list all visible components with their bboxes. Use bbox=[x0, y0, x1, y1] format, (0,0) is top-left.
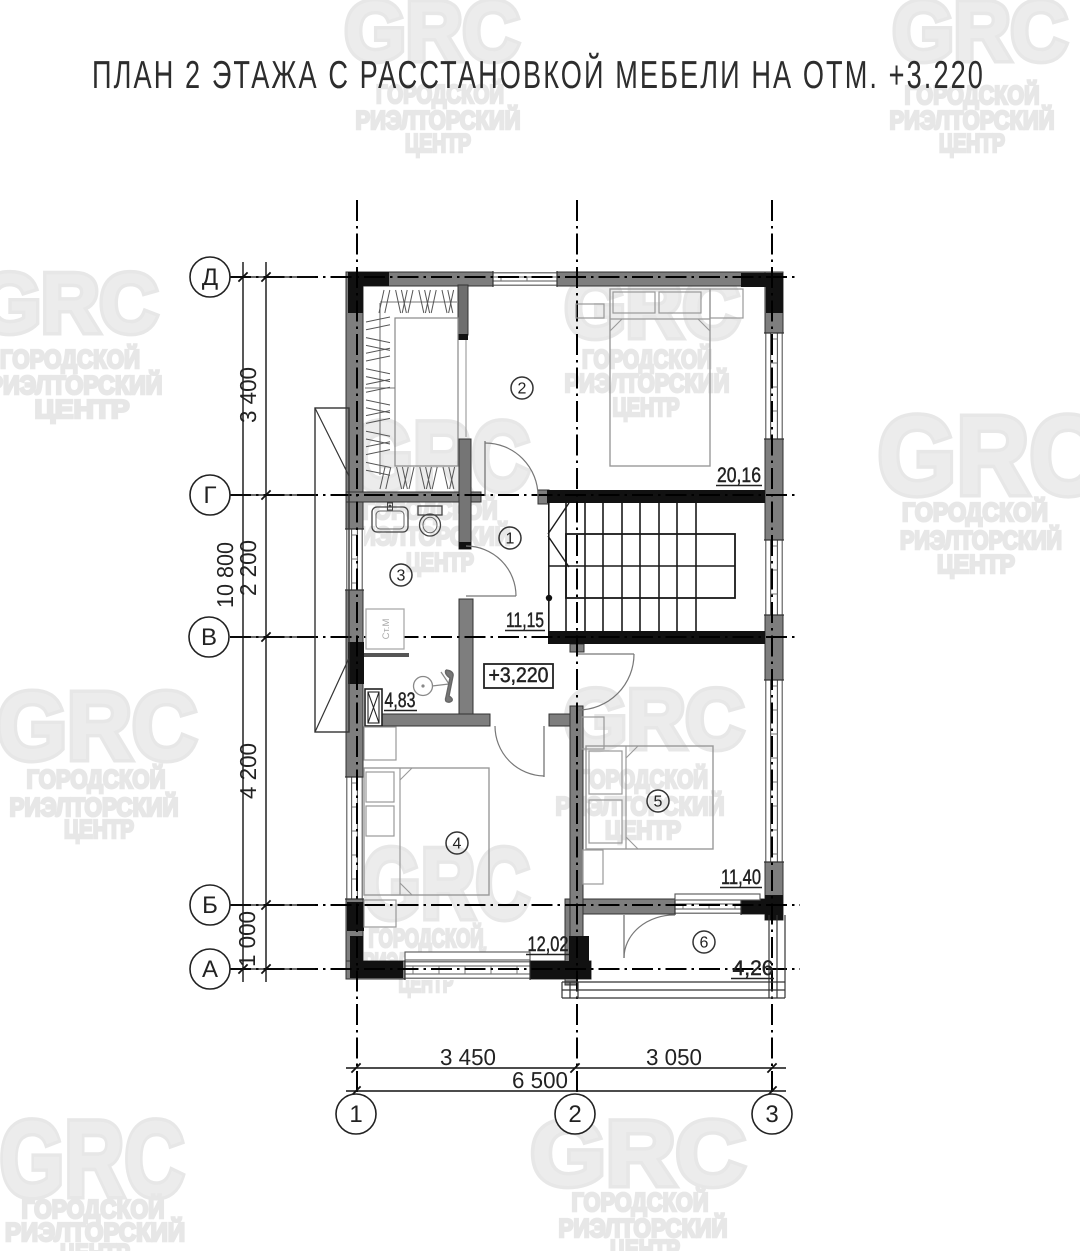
svg-text:1 000: 1 000 bbox=[234, 911, 260, 967]
svg-text:ЦЕНТР: ЦЕНТР bbox=[605, 815, 681, 845]
svg-text:3 450: 3 450 bbox=[440, 1044, 496, 1070]
svg-text:ЦЕНТР: ЦЕНТР bbox=[939, 128, 1005, 158]
svg-text:ПЛАН 2 ЭТАЖА С РАССТАНОВКОЙ МЕ: ПЛАН 2 ЭТАЖА С РАССТАНОВКОЙ МЕБЕЛИ НА ОТ… bbox=[92, 52, 985, 97]
svg-text:6: 6 bbox=[700, 935, 709, 952]
svg-text:4,83: 4,83 bbox=[385, 689, 416, 712]
svg-text:ЦЕНТР: ЦЕНТР bbox=[60, 1238, 130, 1251]
svg-text:ЦЕНТР: ЦЕНТР bbox=[35, 394, 130, 424]
svg-text:Ст.М: Ст.М bbox=[381, 619, 392, 640]
svg-text:+3,220: +3,220 bbox=[489, 664, 549, 687]
svg-text:GRC: GRC bbox=[564, 672, 744, 766]
svg-text:ЦЕНТР: ЦЕНТР bbox=[405, 128, 471, 158]
svg-text:4 200: 4 200 bbox=[235, 743, 261, 799]
svg-text:ГОРОДСКОЙ: ГОРОДСКОЙ bbox=[27, 764, 166, 794]
svg-text:Г: Г bbox=[204, 482, 217, 509]
svg-text:В: В bbox=[201, 624, 217, 651]
svg-text:Б: Б bbox=[202, 892, 218, 919]
svg-text:11,15: 11,15 bbox=[506, 609, 544, 632]
svg-text:12,02: 12,02 bbox=[528, 933, 569, 956]
svg-text:ЦЕНТР: ЦЕНТР bbox=[610, 1234, 680, 1251]
svg-text:1: 1 bbox=[506, 531, 515, 548]
svg-text:11,40: 11,40 bbox=[721, 866, 761, 889]
svg-text:3: 3 bbox=[397, 568, 406, 585]
svg-text:ГОРОДСКОЙ: ГОРОДСКОЙ bbox=[578, 764, 708, 794]
svg-text:1: 1 bbox=[349, 1101, 362, 1128]
svg-text:ЦЕНТР: ЦЕНТР bbox=[406, 547, 474, 577]
svg-text:ЦЕНТР: ЦЕНТР bbox=[64, 814, 134, 844]
svg-text:2: 2 bbox=[568, 1101, 581, 1128]
svg-text:2 200: 2 200 bbox=[235, 540, 261, 596]
svg-text:4,26: 4,26 bbox=[733, 957, 774, 980]
svg-text:А: А bbox=[202, 956, 218, 983]
svg-text:ЦЕНТР: ЦЕНТР bbox=[613, 392, 680, 422]
svg-text:GRC: GRC bbox=[0, 256, 158, 350]
svg-text:Д: Д bbox=[202, 264, 218, 291]
svg-text:ЦЕНТР: ЦЕНТР bbox=[937, 549, 1015, 579]
svg-text:ГОРОДСКОЙ: ГОРОДСКОЙ bbox=[902, 497, 1048, 527]
svg-text:2: 2 bbox=[518, 381, 527, 398]
svg-text:4: 4 bbox=[453, 836, 462, 853]
svg-text:20,16: 20,16 bbox=[717, 464, 761, 487]
svg-text:3 400: 3 400 bbox=[235, 367, 261, 423]
svg-text:3: 3 bbox=[765, 1101, 778, 1128]
svg-text:6 500: 6 500 bbox=[512, 1067, 568, 1093]
svg-text:3 050: 3 050 bbox=[646, 1044, 702, 1070]
svg-text:5: 5 bbox=[654, 794, 663, 811]
